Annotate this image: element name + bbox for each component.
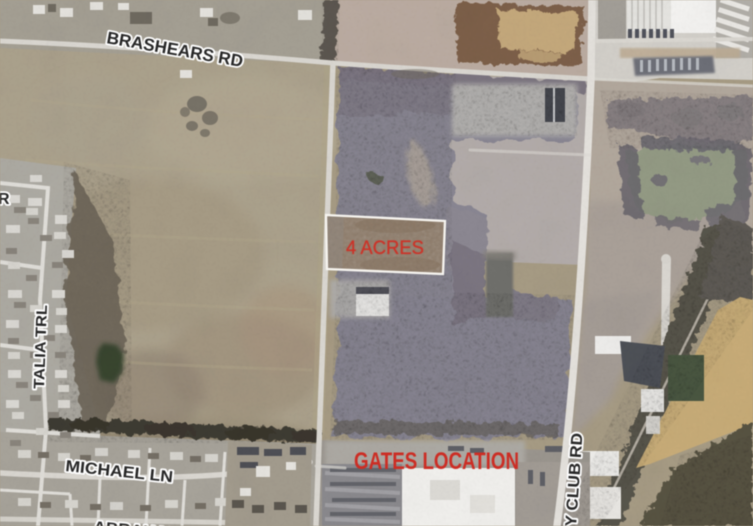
svg-text:R: R <box>0 191 10 208</box>
svg-text:TALIA TRL: TALIA TRL <box>31 305 51 390</box>
svg-text:GATES LOCATION: GATES LOCATION <box>354 448 519 475</box>
svg-text:4 ACRES: 4 ACRES <box>346 238 424 259</box>
